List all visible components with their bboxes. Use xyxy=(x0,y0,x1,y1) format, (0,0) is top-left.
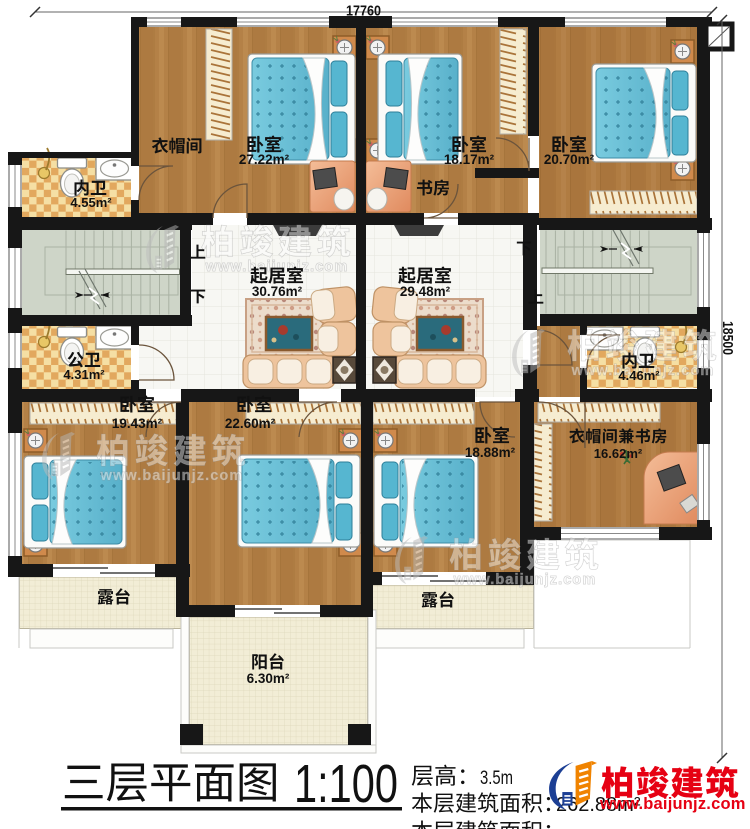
svg-text:29.48m²: 29.48m² xyxy=(400,284,451,299)
svg-text:30.76m²: 30.76m² xyxy=(252,284,303,299)
svg-text:18500: 18500 xyxy=(719,321,736,355)
svg-text:20.70m²: 20.70m² xyxy=(544,152,595,167)
svg-text:4.55m²: 4.55m² xyxy=(70,195,112,210)
svg-text:1:100: 1:100 xyxy=(294,754,398,814)
svg-text:22.60m²: 22.60m² xyxy=(225,416,276,431)
svg-text:16.62m²: 16.62m² xyxy=(594,446,643,461)
svg-text:19.43m²: 19.43m² xyxy=(112,416,163,431)
svg-text:4.46m²: 4.46m² xyxy=(618,368,660,383)
svg-text:4.31m²: 4.31m² xyxy=(63,367,105,382)
svg-text:17760: 17760 xyxy=(346,3,381,20)
svg-text:27.22m²: 27.22m² xyxy=(239,152,290,167)
svg-text:www.baijunjz.com: www.baijunjz.com xyxy=(453,572,597,588)
svg-text:3.5m: 3.5m xyxy=(480,768,513,789)
svg-text:www.baijunjz.com: www.baijunjz.com xyxy=(100,468,244,484)
svg-text:6.30m²: 6.30m² xyxy=(247,671,290,686)
svg-text:18.88m²: 18.88m² xyxy=(465,445,516,460)
svg-text:www.baijunjz.com: www.baijunjz.com xyxy=(599,795,746,813)
svg-text:18.17m²: 18.17m² xyxy=(444,152,495,167)
